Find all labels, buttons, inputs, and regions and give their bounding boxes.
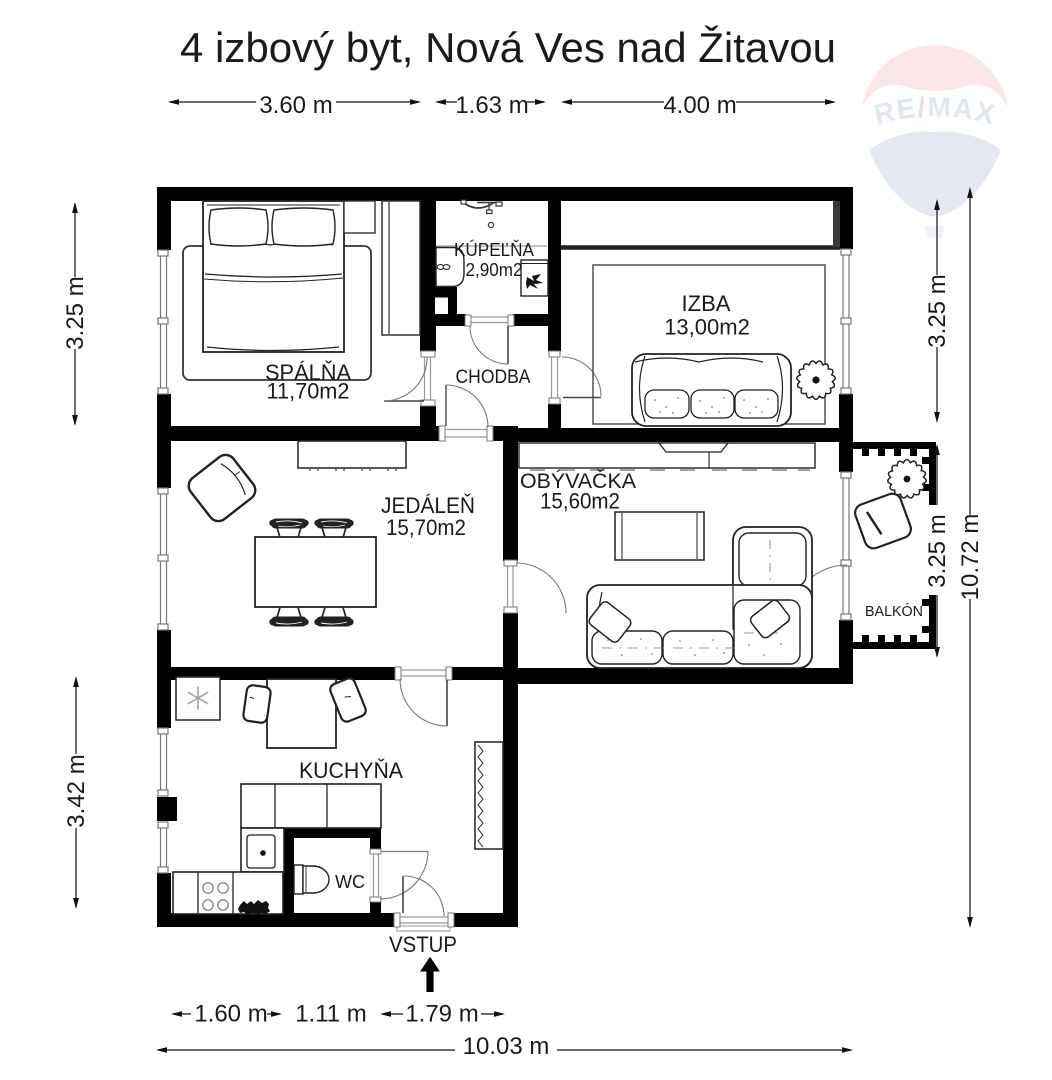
svg-text:3.42 m: 3.42 m (63, 754, 90, 827)
svg-text:IZBA: IZBA (682, 291, 731, 316)
svg-text:4.00 m: 4.00 m (663, 92, 736, 119)
svg-text:1.11 m: 1.11 m (295, 1001, 367, 1028)
svg-text:3.25 m: 3.25 m (924, 274, 951, 347)
svg-text:BALKÓN: BALKÓN (865, 603, 923, 620)
svg-text:15,60m2: 15,60m2 (540, 489, 620, 514)
svg-text:3.25 m: 3.25 m (62, 276, 89, 349)
svg-text:VSTUP: VSTUP (389, 932, 457, 957)
svg-text:KÚPEĽŇA: KÚPEĽŇA (454, 239, 534, 260)
svg-text:CHODBA: CHODBA (456, 367, 531, 388)
svg-text:13,00m2: 13,00m2 (664, 315, 750, 340)
svg-text:1.63 m: 1.63 m (455, 92, 528, 119)
svg-text:4 izbový byt, Nová Ves nad Žit: 4 izbový byt, Nová Ves nad Žitavou (180, 24, 836, 71)
svg-text:1.60 m: 1.60 m (194, 1001, 267, 1028)
svg-text:3.25 m: 3.25 m (924, 514, 951, 587)
svg-text:11,70m2: 11,70m2 (267, 379, 350, 404)
svg-text:15,70m2: 15,70m2 (386, 515, 466, 540)
svg-text:10.72 m: 10.72 m (957, 514, 984, 601)
svg-text:WC: WC (335, 872, 365, 892)
svg-text:10.03 m: 10.03 m (463, 1033, 550, 1060)
svg-text:3.60 m: 3.60 m (259, 92, 332, 119)
svg-text:KUCHYŇA: KUCHYŇA (299, 758, 403, 783)
svg-text:2,90m2: 2,90m2 (466, 260, 523, 280)
svg-text:1.79 m: 1.79 m (405, 1001, 478, 1028)
